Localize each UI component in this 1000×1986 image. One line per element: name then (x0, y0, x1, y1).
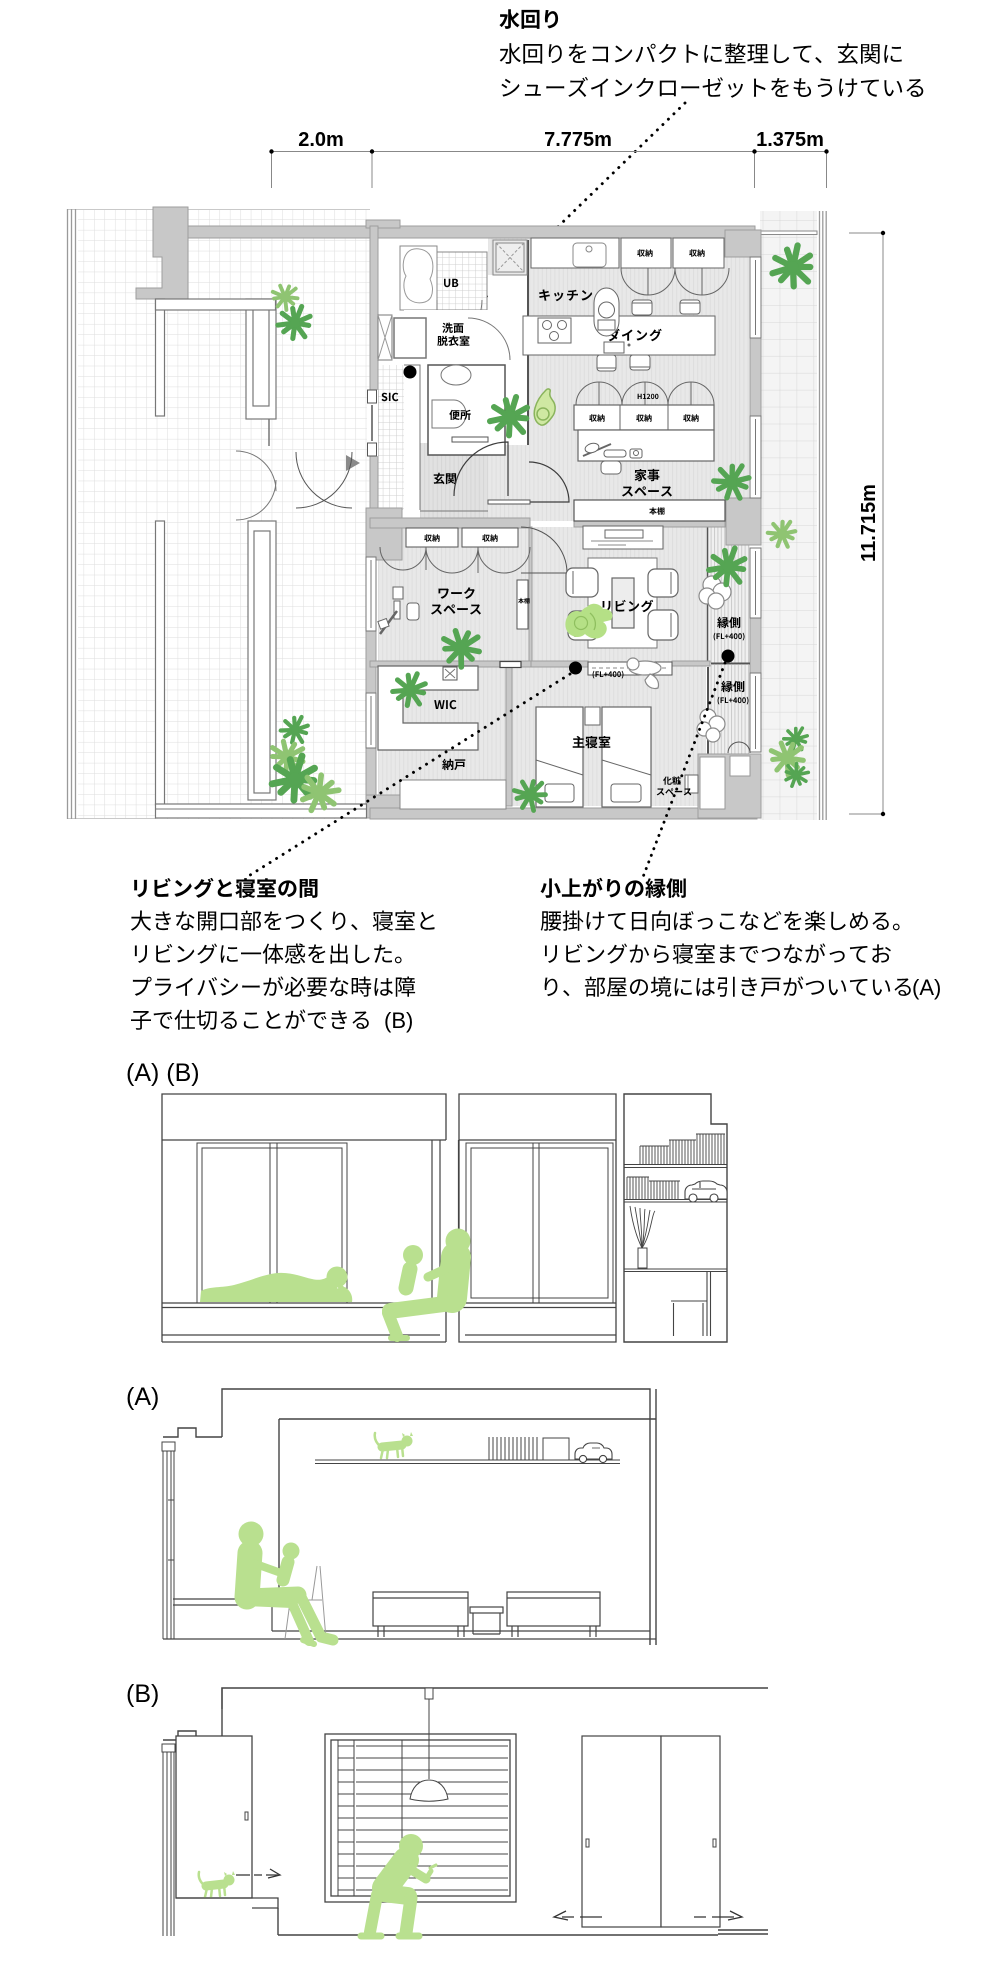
svg-text:(B): (B) (126, 1680, 159, 1708)
svg-text:(A): (A) (126, 1383, 159, 1411)
svg-text:(A): (A) (912, 975, 941, 1000)
svg-text:(A) (B): (A) (B) (126, 1059, 200, 1087)
svg-text:7.775m: 7.775m (544, 129, 612, 151)
svg-text:2.0m: 2.0m (298, 129, 344, 151)
svg-text:11.715m: 11.715m (858, 484, 880, 562)
svg-text:(B): (B) (384, 1008, 413, 1033)
svg-text:1.375m: 1.375m (756, 129, 824, 151)
